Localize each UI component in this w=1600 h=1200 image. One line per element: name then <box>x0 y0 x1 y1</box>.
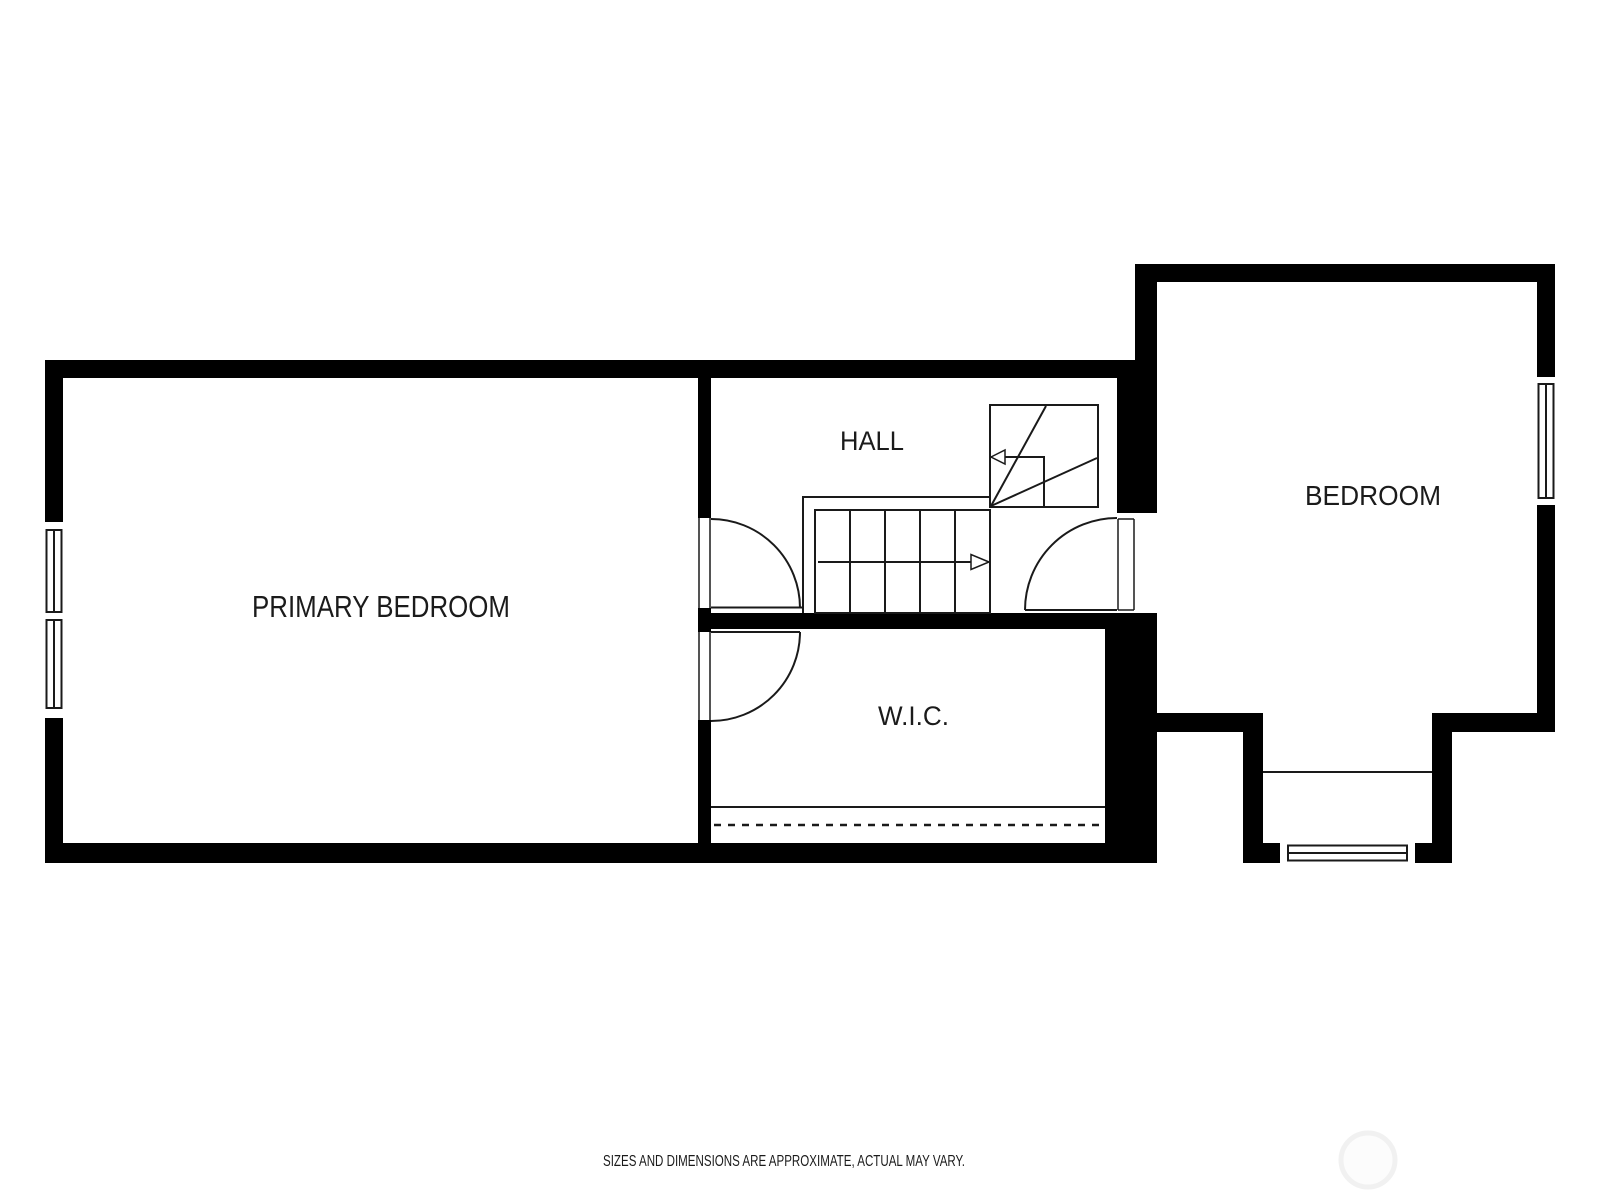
door-primary-to-wic <box>699 632 800 721</box>
watermark-circle-icon <box>1341 1133 1395 1187</box>
door-swing-arc <box>1025 518 1117 610</box>
wall-segment <box>45 360 1135 378</box>
wall-segment <box>45 718 63 863</box>
primary-bedroom-window-upper-icon <box>47 530 62 612</box>
bay-window-icon <box>1288 846 1407 861</box>
stair-winder-inner <box>990 457 1044 507</box>
stair-stringer-outline <box>803 497 990 613</box>
room-label-wic: W.I.C. <box>878 701 949 731</box>
door-hall-to-bedroom <box>1025 518 1134 610</box>
door-swing-arc <box>711 632 800 721</box>
wall-segment <box>1135 264 1157 513</box>
wall-segment <box>1415 843 1452 863</box>
wall-segment <box>1432 713 1452 863</box>
room-label-primary-bedroom: PRIMARY BEDROOM <box>252 589 510 624</box>
wall-segment <box>1105 613 1157 863</box>
wall-segment <box>698 720 711 843</box>
floor-plan-page: PRIMARY BEDROOM HALL W.I.C. BEDROOM SIZE… <box>0 0 1600 1200</box>
wall-segment <box>1243 713 1263 863</box>
door-primary-to-hall <box>699 518 802 608</box>
footer-disclaimer: SIZES AND DIMENSIONS ARE APPROXIMATE, AC… <box>603 1153 965 1170</box>
stair-winder-arrow-icon <box>991 450 1005 464</box>
wall-segment <box>1537 505 1555 732</box>
stair-direction-arrow-icon <box>971 555 989 570</box>
wall-segment <box>45 843 1157 863</box>
wall-segment <box>45 360 63 522</box>
closet-lines <box>711 807 1105 825</box>
bedroom-side-window-icon <box>1539 384 1554 498</box>
wall-segment <box>1537 264 1555 377</box>
door-swing-arc <box>711 519 800 608</box>
room-label-hall: HALL <box>840 426 904 456</box>
primary-bedroom-window-lower-icon <box>47 620 62 708</box>
wall-segment <box>698 378 711 518</box>
wall-segment <box>1135 264 1555 282</box>
floor-plan: PRIMARY BEDROOM HALL W.I.C. BEDROOM SIZE… <box>0 0 1600 1200</box>
room-labels: PRIMARY BEDROOM HALL W.I.C. BEDROOM <box>252 426 1441 731</box>
wall-segment <box>698 613 1157 629</box>
wall-segment <box>1243 843 1280 863</box>
room-label-bedroom: BEDROOM <box>1305 480 1441 511</box>
walls <box>45 264 1555 863</box>
